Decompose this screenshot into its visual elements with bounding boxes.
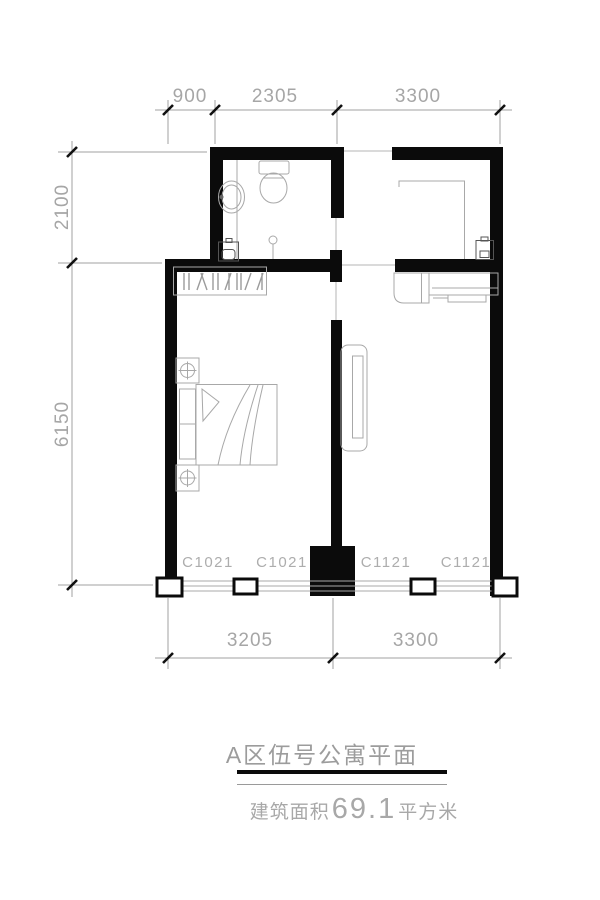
window-pier-left — [157, 578, 182, 596]
counter-top — [429, 273, 498, 295]
window-label-4: C1121 — [441, 554, 492, 571]
dim-top-900: 900 — [173, 86, 208, 108]
dim-bottom-3300: 3300 — [393, 630, 439, 652]
double-bed-icon — [180, 385, 278, 466]
blanket-fold-1 — [218, 385, 250, 465]
kitchen — [399, 181, 494, 260]
sink-icon — [219, 181, 245, 213]
counter-front-bar — [448, 295, 486, 302]
dim-bottom-3205: 3205 — [227, 630, 273, 652]
title-underline-thin — [237, 784, 447, 785]
nightstand-top — [176, 358, 199, 383]
blanket-fold-3 — [250, 385, 263, 465]
wall-bedroom-left — [165, 259, 177, 582]
wall-right-exterior — [490, 147, 503, 596]
dim-left-2100: 2100 — [52, 184, 74, 230]
bedroom — [174, 267, 278, 491]
left-extension-lines — [58, 152, 207, 585]
toilet-icon — [259, 161, 289, 203]
walls — [165, 147, 503, 596]
area-suffix: 平方米 — [398, 797, 458, 824]
floor-plan-page: 900 2305 3300 2100 6150 3205 3300 C1021 … — [0, 0, 600, 900]
plan-title: A区伍号公寓平面 — [226, 736, 418, 770]
window-label-1: C1021 — [182, 554, 234, 571]
dim-top-3300: 3300 — [395, 86, 441, 108]
dimension-ticks — [67, 105, 505, 663]
shower-drain-icon — [269, 236, 277, 259]
area-prefix: 建筑面积 — [250, 797, 330, 824]
wall-top-right — [392, 147, 502, 160]
wall-top-left — [210, 147, 343, 160]
wall-bedroom-top — [165, 259, 341, 272]
wall-bathroom-left — [210, 147, 223, 263]
window-label-3: C1121 — [361, 554, 412, 571]
window-label-2: C1021 — [256, 554, 308, 571]
window-pier-right — [493, 578, 517, 596]
kitchen-counter-outline — [399, 181, 465, 259]
area-value: 69.1 — [332, 793, 396, 826]
pillow — [202, 389, 219, 421]
column-center — [310, 546, 355, 596]
cooktop-counter — [394, 273, 498, 303]
window-mullion-2 — [411, 579, 435, 594]
counter-rounded-cabinet — [394, 273, 429, 303]
nightstand-bottom — [176, 465, 199, 491]
dimension-lines — [58, 100, 512, 669]
dim-top-2305: 2305 — [252, 86, 298, 108]
wall-bathroom-right — [331, 147, 344, 218]
wall-stub-center — [330, 250, 342, 282]
dim-left-6150: 6150 — [52, 401, 74, 447]
wall-opening-lines — [336, 151, 395, 320]
wall-central — [331, 320, 342, 548]
bathroom — [219, 160, 290, 261]
wall-kitchen-bottom — [395, 259, 502, 272]
window-mullion-1 — [234, 579, 257, 594]
title-underline-thick — [237, 770, 447, 774]
tv-cabinet-icon — [341, 345, 367, 451]
building-area-text: 建筑面积 69.1 平方米 — [250, 793, 458, 826]
